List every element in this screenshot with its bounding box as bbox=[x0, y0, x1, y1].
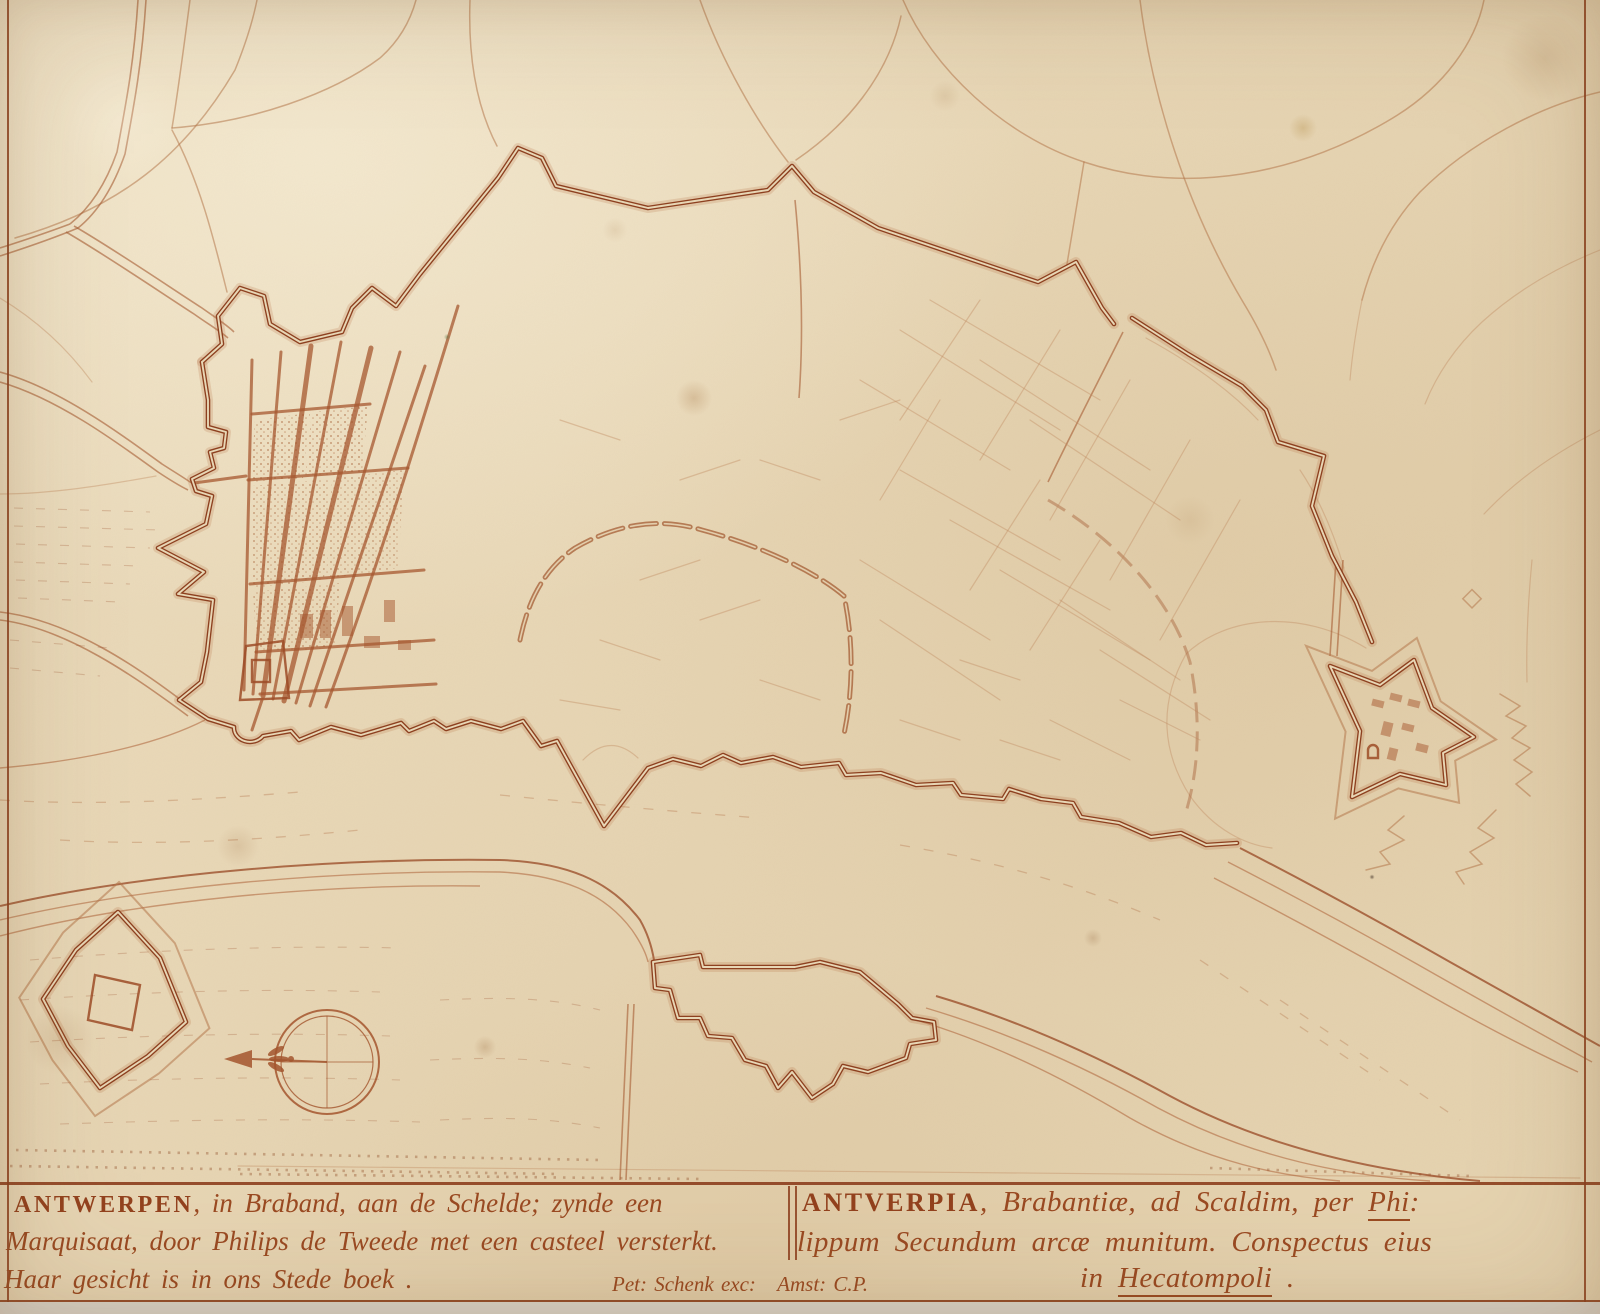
band-top-rule bbox=[0, 1182, 1600, 1185]
dutch-title-line2: Marquisaat, door Philips de Tweede met e… bbox=[6, 1226, 718, 1257]
city-name-dutch: ANTWERPEN bbox=[14, 1192, 193, 1218]
latin-title-line2: lippum Secundum arcæ munitum. Conspectus… bbox=[797, 1226, 1432, 1259]
plate-border-right bbox=[1584, 0, 1586, 1302]
latin-title-line3: in Hecatompoli . bbox=[1080, 1262, 1295, 1295]
antique-map-sheet: ANTWERPEN, in Braband, aan de Schelde; z… bbox=[0, 0, 1600, 1314]
sheet-edge-strip bbox=[0, 1302, 1600, 1314]
engraved-map bbox=[0, 0, 1600, 1182]
plate-border-left bbox=[7, 0, 9, 1302]
dutch-title-line1: ANTWERPEN, in Braband, aan de Schelde; z… bbox=[14, 1188, 663, 1219]
dutch-title-line3: Haar gesicht is in ons Stede boek . bbox=[4, 1264, 412, 1295]
paper-grain bbox=[0, 0, 1600, 1182]
city-name-latin: ANTVERPIA bbox=[802, 1188, 980, 1217]
latin-title-line1: ANTVERPIA, Brabantiæ, ad Scaldim, per Ph… bbox=[802, 1186, 1420, 1219]
publisher-imprint: Pet: Schenk exc: Amst: C.P. bbox=[612, 1272, 868, 1297]
column-divider bbox=[788, 1186, 790, 1260]
